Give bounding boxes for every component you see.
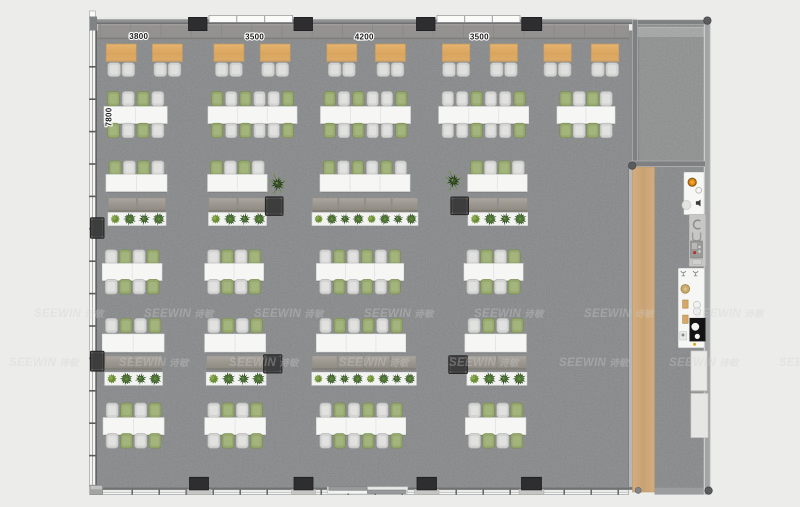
svg-text:SEEWIN诗敏: SEEWIN诗敏 bbox=[559, 357, 630, 369]
svg-text:SEEWIN诗敏: SEEWIN诗敏 bbox=[144, 308, 215, 320]
svg-text:7800: 7800 bbox=[105, 107, 114, 126]
svg-text:SEEWIN诗敏: SEEWIN诗敏 bbox=[669, 357, 740, 369]
svg-text:SEEWIN诗敏: SEEWIN诗敏 bbox=[694, 308, 765, 320]
svg-text:SEEWIN诗敏: SEEWIN诗敏 bbox=[119, 357, 190, 369]
svg-text:SEEWIN诗敏: SEEWIN诗敏 bbox=[779, 357, 800, 369]
svg-text:SEEWIN诗敏: SEEWIN诗敏 bbox=[9, 357, 80, 369]
svg-text:SEEWIN诗敏: SEEWIN诗敏 bbox=[339, 357, 410, 369]
svg-text:SEEWIN诗敏: SEEWIN诗敏 bbox=[584, 308, 655, 320]
svg-text:SEEWIN诗敏: SEEWIN诗敏 bbox=[364, 308, 435, 320]
svg-text:SEEWIN诗敏: SEEWIN诗敏 bbox=[449, 357, 520, 369]
svg-text:SEEWIN诗敏: SEEWIN诗敏 bbox=[229, 357, 300, 369]
svg-text:3500: 3500 bbox=[245, 32, 264, 41]
svg-text:3500: 3500 bbox=[470, 33, 489, 42]
svg-text:SEEWIN诗敏: SEEWIN诗敏 bbox=[34, 308, 105, 320]
svg-text:4200: 4200 bbox=[355, 33, 374, 42]
svg-text:3800: 3800 bbox=[129, 32, 148, 41]
svg-text:SEEWIN诗敏: SEEWIN诗敏 bbox=[474, 308, 545, 320]
svg-text:SEEWIN诗敏: SEEWIN诗敏 bbox=[254, 308, 325, 320]
